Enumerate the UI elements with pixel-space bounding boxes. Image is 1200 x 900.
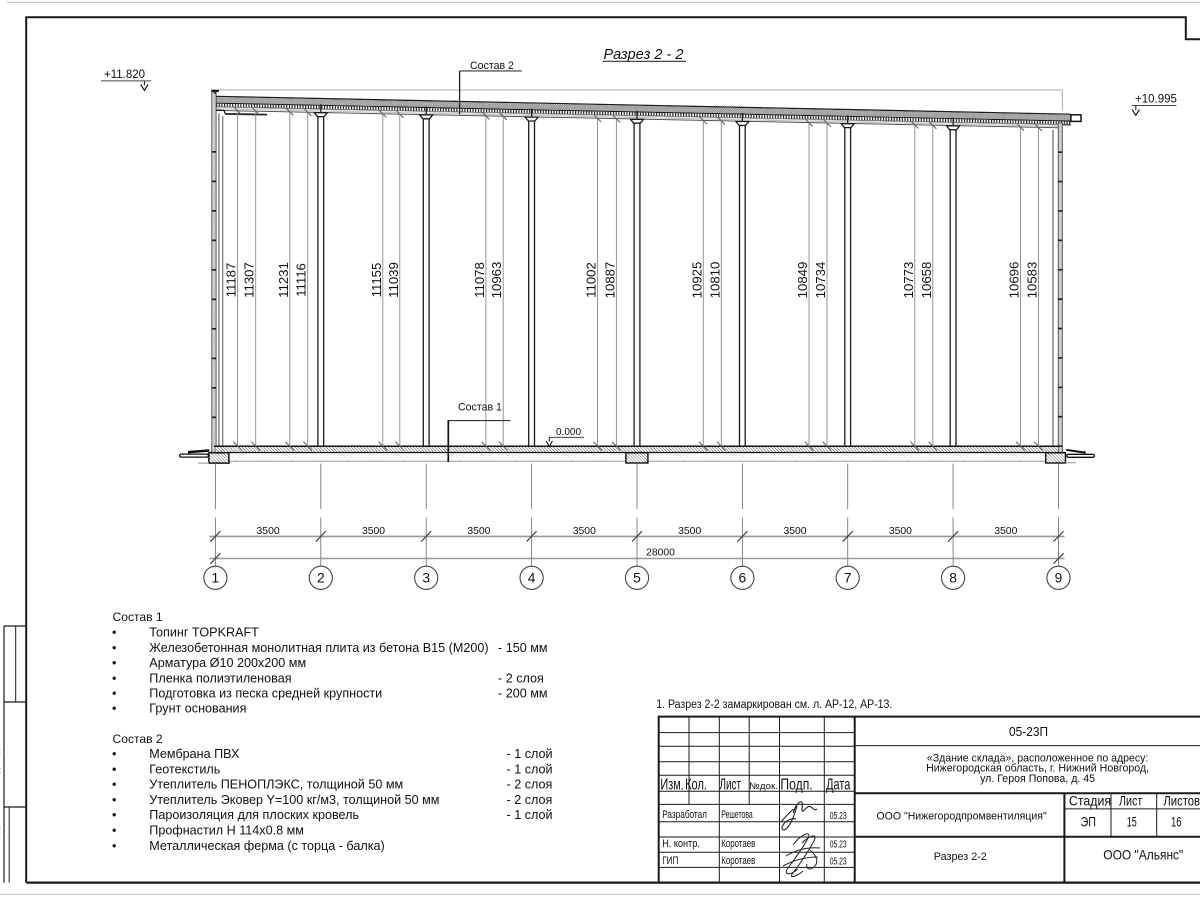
svg-text:Грунт основания: Грунт основания [149, 702, 246, 716]
svg-text:Утеплитель Эковер Y=100 кг/м3,: Утеплитель Эковер Y=100 кг/м3, толщиной … [149, 793, 439, 807]
svg-text:11039: 11039 [386, 262, 401, 298]
svg-text:10696: 10696 [1007, 262, 1022, 299]
svg-text:Профнастил Н 114х0.8 мм: Профнастил Н 114х0.8 мм [149, 824, 304, 838]
svg-text:Подп. и дата: Подп. и дата [0, 737, 1, 782]
svg-text:•: • [112, 839, 116, 853]
svg-text:Мембрана ПВХ: Мембрана ПВХ [149, 747, 240, 761]
svg-text:Пленка полиэтиленовая: Пленка полиэтиленовая [149, 671, 291, 685]
svg-text:5: 5 [633, 571, 641, 586]
svg-text:ООО "Альянс": ООО "Альянс" [1103, 847, 1183, 863]
svg-text:Стадия: Стадия [1069, 794, 1111, 809]
svg-text:7: 7 [844, 571, 852, 586]
svg-text:10810: 10810 [707, 262, 722, 299]
svg-text:- 2 слоя: - 2 слоя [507, 793, 553, 807]
svg-text:Состав 1: Состав 1 [113, 610, 163, 624]
svg-text:Разработал: Разработал [662, 809, 707, 821]
svg-text:9: 9 [1055, 571, 1063, 586]
svg-text:ЭП: ЭП [1081, 814, 1097, 830]
svg-text:•: • [112, 702, 116, 716]
svg-text:11231: 11231 [276, 262, 291, 298]
svg-text:3500: 3500 [467, 526, 490, 537]
svg-text:Состав 2: Состав 2 [113, 732, 163, 746]
svg-text:+10.995: +10.995 [1135, 94, 1177, 106]
svg-text:28000: 28000 [646, 548, 675, 559]
svg-text:- 2 слоя: - 2 слоя [498, 671, 544, 685]
svg-text:8: 8 [949, 571, 957, 586]
svg-text:Лист: Лист [720, 777, 742, 794]
svg-text:Изм.: Изм. [660, 777, 683, 794]
svg-text:05.23: 05.23 [830, 811, 847, 822]
svg-text:Пароизоляция для плоских крове: Пароизоляция для плоских кровель [149, 808, 359, 822]
svg-text:10925: 10925 [689, 262, 704, 299]
svg-text:№док.: №док. [749, 781, 778, 792]
svg-text:10734: 10734 [813, 262, 828, 299]
svg-text:10773: 10773 [901, 262, 916, 299]
svg-text:Лист: Лист [1119, 794, 1142, 809]
svg-text:•: • [112, 656, 116, 670]
svg-text:3: 3 [422, 571, 430, 586]
svg-text:Арматура Ø10 200х200 мм: Арматура Ø10 200х200 мм [149, 656, 306, 670]
svg-text:•: • [112, 671, 116, 685]
svg-text:Дата: Дата [826, 777, 850, 794]
svg-text:15: 15 [1127, 814, 1137, 830]
svg-text:•: • [112, 747, 116, 761]
svg-text:Кол.: Кол. [685, 777, 707, 794]
svg-text:Подготовка из песка средней кр: Подготовка из песка средней крупности [149, 687, 382, 701]
svg-text:11116: 11116 [294, 263, 309, 297]
svg-text:•: • [112, 793, 116, 807]
svg-text:Разрез 2 - 2: Разрез 2 - 2 [604, 47, 684, 63]
svg-text:Железобетонная монолитная плит: Железобетонная монолитная плита из бетон… [149, 641, 488, 655]
svg-text:11002: 11002 [584, 262, 599, 298]
svg-text:Листов: Листов [1163, 794, 1200, 809]
svg-text:05.23: 05.23 [830, 840, 847, 851]
svg-text:•: • [112, 641, 116, 655]
svg-text:10963: 10963 [489, 262, 504, 299]
svg-text:ООО "Нижегородпромвентиляция": ООО "Нижегородпромвентиляция" [877, 811, 1047, 823]
svg-text:- 150 мм: - 150 мм [498, 641, 548, 655]
svg-text:Подп.: Подп. [780, 777, 812, 794]
svg-text:Инв. № подл.: Инв. № подл. [0, 822, 1, 869]
svg-text:- 200 мм: - 200 мм [498, 687, 548, 701]
svg-text:3500: 3500 [362, 526, 385, 537]
svg-text:10849: 10849 [795, 262, 810, 299]
svg-text:05.23: 05.23 [830, 857, 847, 868]
svg-text:Разрез 2-2: Разрез 2-2 [934, 851, 987, 863]
svg-text:3500: 3500 [257, 526, 280, 537]
svg-text:Коротаев: Коротаев [721, 855, 755, 867]
svg-text:Коротаев: Коротаев [721, 838, 755, 850]
svg-text:Металлическая ферма (с торца -: Металлическая ферма (с торца - балка) [149, 839, 384, 853]
svg-text:3500: 3500 [783, 526, 806, 537]
svg-text:•: • [112, 626, 116, 640]
svg-text:- 1 слой: - 1 слой [507, 808, 553, 822]
svg-text:ул. Героя Попова, д. 45: ул. Героя Попова, д. 45 [980, 773, 1095, 785]
svg-text:4: 4 [528, 571, 536, 586]
svg-text:0.000: 0.000 [556, 427, 581, 438]
svg-text:11078: 11078 [472, 262, 487, 298]
svg-text:05-23П: 05-23П [1009, 725, 1048, 739]
svg-text:ГИП: ГИП [662, 855, 678, 867]
svg-text:Состав 2: Состав 2 [470, 60, 514, 72]
svg-text:•: • [112, 687, 116, 701]
svg-text:16: 16 [1171, 814, 1182, 830]
svg-text:10583: 10583 [1025, 262, 1040, 299]
svg-text:3500: 3500 [573, 526, 596, 537]
svg-text:•: • [112, 824, 116, 838]
svg-text:2: 2 [317, 571, 325, 586]
svg-text:+11.820: +11.820 [104, 69, 145, 81]
svg-text:- 2 слоя: - 2 слоя [507, 778, 553, 792]
svg-text:11307: 11307 [242, 262, 257, 298]
svg-text:1: 1 [212, 571, 220, 586]
svg-text:11187: 11187 [224, 263, 239, 298]
svg-text:3500: 3500 [678, 526, 701, 537]
svg-text:1. Разрез 2-2 замаркирован см.: 1. Разрез 2-2 замаркирован см. л. АР-12,… [656, 699, 892, 711]
svg-text:Утеплитель ПЕНОПЛЭКС, толщиной: Утеплитель ПЕНОПЛЭКС, толщиной 50 мм [149, 778, 403, 792]
svg-text:- 1 слой: - 1 слой [507, 762, 553, 776]
svg-text:Топинг TOPKRAFT: Топинг TOPKRAFT [149, 626, 259, 640]
svg-text:10887: 10887 [602, 262, 617, 299]
svg-text:•: • [112, 808, 116, 822]
svg-text:Взам. инв. №: Взам. инв. № [0, 641, 1, 687]
svg-text:Геотекстиль: Геотекстиль [149, 762, 220, 776]
svg-text:11155: 11155 [369, 263, 384, 298]
svg-text:6: 6 [739, 571, 747, 586]
svg-text:Состав 1: Состав 1 [458, 401, 502, 413]
svg-text:•: • [112, 778, 116, 792]
svg-text:Н. контр.: Н. контр. [662, 838, 700, 850]
svg-text:10658: 10658 [919, 262, 934, 299]
svg-text:•: • [112, 762, 116, 776]
svg-text:Решетова: Решетова [721, 809, 753, 821]
svg-text:- 1 слой: - 1 слой [507, 747, 553, 761]
svg-text:3500: 3500 [994, 526, 1017, 537]
svg-text:3500: 3500 [889, 526, 912, 537]
